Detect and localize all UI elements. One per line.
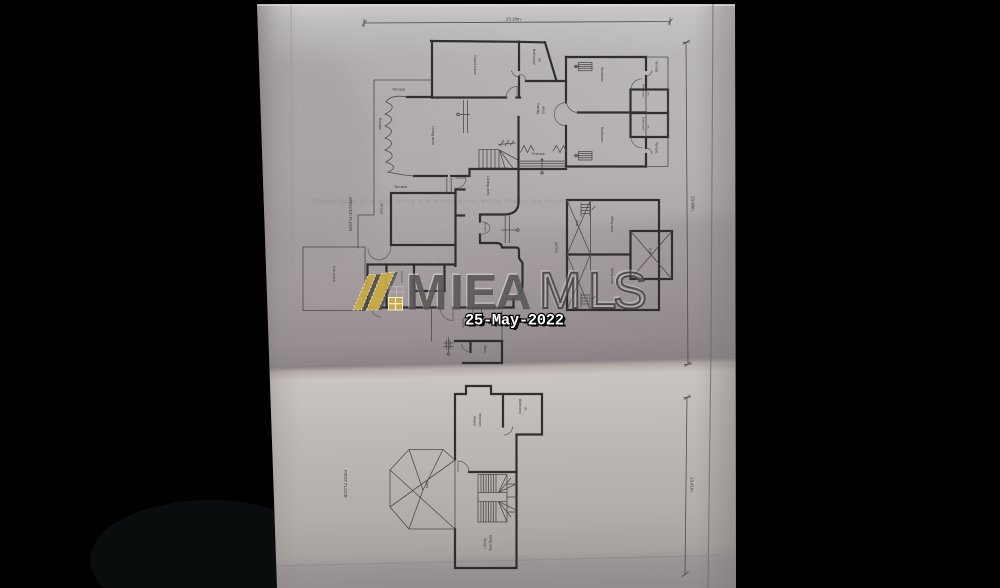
svg-text:23.18m.: 23.18m. [506,17,522,22]
svg-text:Guest room: Guest room [473,55,477,75]
svg-text:M: M [406,265,448,321]
svg-text:Espalier: Espalier [378,118,382,131]
svg-text:Bedroom: Bedroom [600,67,604,82]
svg-text:Bathroom/: Bathroom/ [532,49,536,65]
svg-text:Terrace: Terrace [484,222,488,232]
svg-text:ATTIC: ATTIC [554,242,559,253]
svg-text:I: I [450,265,464,321]
svg-text:Terrace: Terrace [655,61,659,72]
svg-text:Master: Master [473,416,477,427]
svg-text:wc: wc [524,407,528,411]
svg-text:Terrace: Terrace [532,151,546,156]
svg-text:wc: wc [538,58,542,62]
svg-text:Void: Void [425,481,429,488]
svg-text:Terrace: Terrace [394,184,408,189]
svg-text:Terrace: Terrace [380,203,384,214]
svg-text:Terrace: Terrace [655,142,659,153]
svg-text:Bathroom/: Bathroom/ [642,84,646,98]
svg-text:Dining area: Dining area [486,176,490,196]
svg-text:bedroom: bedroom [478,413,482,427]
svg-text:Terrace: Terrace [392,87,406,92]
svg-text:wc: wc [647,125,651,129]
svg-text:Utility area: Utility area [610,216,614,232]
svg-text:Utility area: Utility area [489,535,493,551]
svg-text:S: S [613,262,647,319]
svg-text:13.41m.: 13.41m. [690,477,695,493]
svg-text:Living area: Living area [431,126,435,145]
svg-text:Family: Family [536,103,540,114]
svg-text:Bathroom/: Bathroom/ [642,117,646,131]
svg-text:M: M [539,262,581,319]
svg-text:Void: Void [575,220,579,226]
svg-text:Servants: Servants [400,271,404,283]
svg-text:Car porch: Car porch [332,266,336,282]
svg-text:Study /: Study / [483,538,487,549]
svg-text:Bedroom: Bedroom [600,127,604,142]
svg-text:area: area [542,106,546,114]
svg-text:Void: Void [648,248,652,254]
svg-text:25-May-2022: 25-May-2022 [465,312,564,330]
svg-text:23.99m.: 23.99m. [691,196,696,212]
svg-text:Oven: Oven [483,345,487,353]
svg-text:GROUND FLOOR: GROUND FLOOR [348,197,353,231]
svg-text:wc: wc [647,92,651,96]
svg-text:FIRST FLOOR: FIRST FLOOR [343,470,348,498]
svg-text:Bathroom/: Bathroom/ [518,399,522,414]
